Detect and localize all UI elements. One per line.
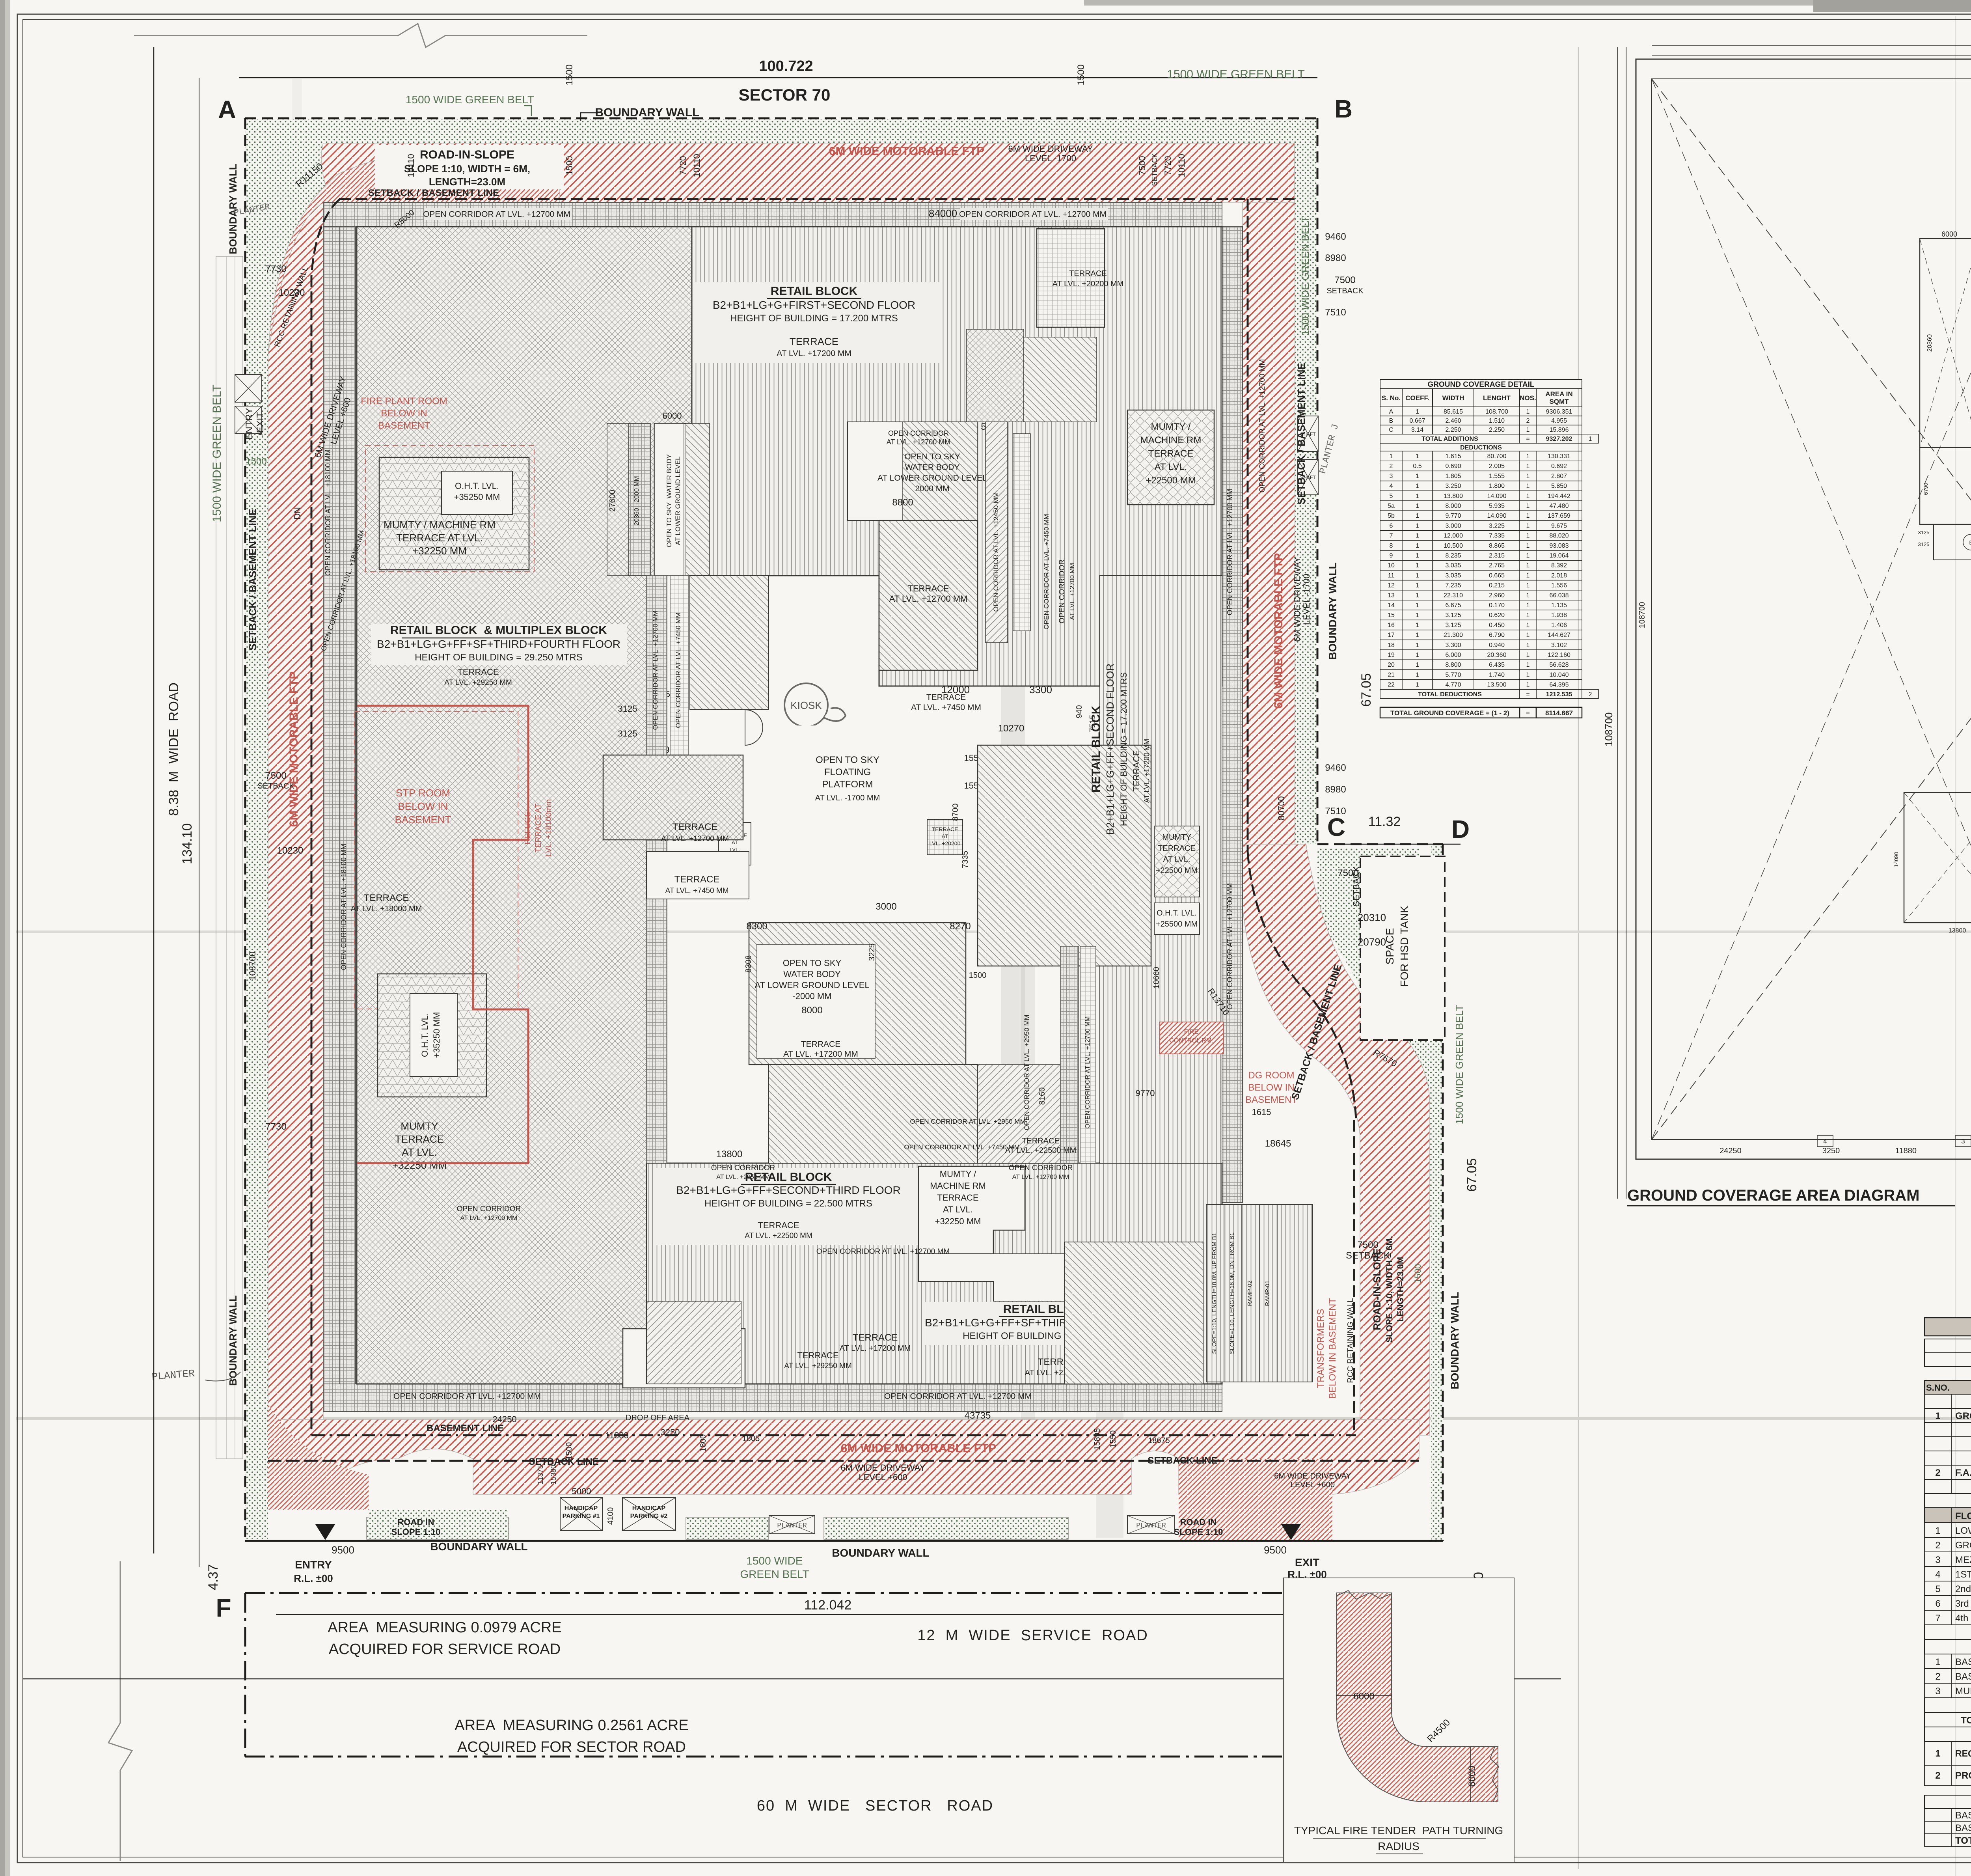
svg-text:TERRACE: TERRACE [1158, 844, 1196, 853]
svg-text:=: = [1526, 709, 1530, 717]
svg-text:1: 1 [1526, 473, 1530, 479]
svg-text:8.38 M WIDE ROAD: 8.38 M WIDE ROAD [166, 683, 181, 816]
svg-text:6.790: 6.790 [1489, 632, 1505, 639]
svg-text:GROUND FLOOR: GROUND FLOOR [1955, 1540, 1971, 1551]
svg-text:RETAIL BLOCK: RETAIL BLOCK [771, 285, 858, 298]
svg-text:OPEN CORRIDOR AT LVL. +12700 M: OPEN CORRIDOR AT LVL. +12700 MM [1258, 359, 1267, 492]
svg-text:3: 3 [1961, 1138, 1965, 1145]
svg-text:1: 1 [1416, 622, 1419, 628]
svg-text:1: 1 [1526, 682, 1530, 688]
svg-text:3.035: 3.035 [1445, 562, 1461, 569]
svg-text:HEIGHT OF BUILDING = 17.200 MT: HEIGHT OF BUILDING = 17.200 MTRS [1119, 672, 1129, 826]
svg-text:HANDICAP: HANDICAP [564, 1505, 598, 1512]
svg-text:AT LVL.: AT LVL. [1163, 855, 1190, 864]
svg-text:TERRACE: TERRACE [758, 1220, 799, 1230]
svg-text:18645: 18645 [1265, 1138, 1291, 1149]
svg-text:1: 1 [1526, 612, 1530, 619]
svg-text:1: 1 [1416, 473, 1419, 479]
svg-text:43735: 43735 [965, 1410, 991, 1421]
svg-text:8: 8 [1390, 543, 1393, 549]
svg-text:1: 1 [1416, 682, 1419, 688]
svg-text:6: 6 [1935, 1598, 1940, 1609]
svg-text:1: 1 [1416, 408, 1419, 415]
svg-text:LVL. +20200: LVL. +20200 [930, 840, 961, 847]
svg-text:1: 1 [1526, 572, 1530, 579]
svg-text:TOTAL BUILT UP AREA (FAR+ NON: TOTAL BUILT UP AREA (FAR+ NON FAR) [1961, 1715, 1971, 1726]
svg-text:6M WIDE DRIVEWAY: 6M WIDE DRIVEWAY [840, 1463, 925, 1473]
svg-text:HEIGHT OF BUILDING = 29.250 MT: HEIGHT OF BUILDING = 29.250 MTRS [415, 652, 583, 663]
svg-text:10270: 10270 [998, 723, 1025, 734]
svg-text:8.000: 8.000 [1445, 503, 1461, 509]
svg-text:TERRACE: TERRACE [801, 1040, 840, 1049]
svg-text:SLOPE=1:10, LENGTH=18.0M, UP F: SLOPE=1:10, LENGTH=18.0M, UP FROM B1 [1211, 1233, 1218, 1354]
svg-text:RCC RETAINING WALL: RCC RETAINING WALL [1346, 1298, 1355, 1383]
svg-text:1: 1 [1416, 602, 1419, 609]
svg-text:ENTRY: ENTRY [295, 1559, 332, 1571]
svg-text:O.H.T. LVL.: O.H.T. LVL. [1157, 909, 1197, 917]
svg-text:1: 1 [1526, 602, 1530, 609]
svg-text:OPEN CORRIDOR AT LVL. +18100 M: OPEN CORRIDOR AT LVL. +18100 MM [340, 844, 348, 970]
svg-text:3.000: 3.000 [1445, 522, 1461, 529]
svg-text:1500 WIDE GREEN BELT: 1500 WIDE GREEN BELT [1299, 216, 1311, 336]
svg-text:OPEN TO SKY: OPEN TO SKY [816, 755, 879, 765]
svg-text:ACQUIRED FOR SERVICE ROAD: ACQUIRED FOR SERVICE ROAD [329, 1641, 561, 1658]
svg-text:1500 WIDE: 1500 WIDE [746, 1555, 803, 1567]
svg-text:13800: 13800 [716, 1149, 743, 1160]
svg-text:3250: 3250 [661, 1427, 680, 1437]
svg-text:6M WIDE MOTORABLE FTP: 6M WIDE MOTORABLE FTP [841, 1442, 996, 1455]
svg-text:10110: 10110 [692, 154, 702, 177]
svg-text:20.360: 20.360 [1487, 652, 1507, 658]
svg-text:2.765: 2.765 [1489, 562, 1505, 569]
svg-text:6M WIDE DRIVEWAY: 6M WIDE DRIVEWAY [1292, 557, 1302, 641]
svg-text:8270: 8270 [950, 921, 971, 932]
svg-text:GROUND COVERAGE DETAIL: GROUND COVERAGE DETAIL [1428, 380, 1535, 389]
svg-text:6: 6 [1390, 522, 1393, 529]
svg-text:3.035: 3.035 [1445, 572, 1461, 579]
svg-text:TERRACE: TERRACE [364, 893, 409, 903]
svg-text:4th FLOOR: 4th FLOOR [1955, 1613, 1971, 1624]
svg-text:3.250: 3.250 [1445, 483, 1461, 490]
svg-text:1.510: 1.510 [1489, 418, 1505, 424]
svg-text:1: 1 [1416, 612, 1419, 619]
svg-text:DEDUCTIONS: DEDUCTIONS [1460, 444, 1502, 451]
svg-text:10110: 10110 [406, 154, 416, 177]
svg-text:14.090: 14.090 [1487, 513, 1507, 519]
svg-text:1: 1 [1526, 642, 1530, 649]
svg-text:SETBACK: SETBACK [1326, 287, 1364, 295]
svg-text:LEVEL -1700: LEVEL -1700 [1302, 574, 1312, 625]
svg-text:8308: 8308 [744, 955, 753, 973]
svg-text:9500: 9500 [332, 1544, 354, 1556]
svg-text:5: 5 [1935, 1584, 1940, 1594]
svg-text:AT LVL. +2950 MM: AT LVL. +2950 MM [716, 1174, 770, 1180]
svg-text:6.435: 6.435 [1489, 662, 1505, 668]
svg-text:10.040: 10.040 [1550, 671, 1569, 678]
svg-text:ENTRY: ENTRY [244, 408, 255, 440]
svg-text:LENGTH=23.0M: LENGTH=23.0M [1395, 1257, 1405, 1322]
svg-text:14.090: 14.090 [1487, 493, 1507, 500]
svg-text:6M WIDE MOTORABLE FTP: 6M WIDE MOTORABLE FTP [287, 671, 300, 827]
svg-text:12 M WIDE SERVICE ROAD: 12 M WIDE SERVICE ROAD [917, 1627, 1148, 1644]
svg-text:3.14: 3.14 [1411, 427, 1423, 433]
svg-text:SETBACK LINE: SETBACK LINE [1148, 1455, 1217, 1466]
svg-text:13: 13 [1388, 592, 1395, 599]
svg-text:1: 1 [1935, 1748, 1940, 1759]
svg-text:108700: 108700 [1603, 712, 1615, 747]
svg-text:OPEN CORRIDOR AT LVL. +7450 MM: OPEN CORRIDOR AT LVL. +7450 MM [904, 1143, 1019, 1151]
svg-text:1500: 1500 [1413, 1264, 1423, 1283]
svg-text:3: 3 [1935, 1555, 1940, 1565]
svg-text:BOUNDARY WALL: BOUNDARY WALL [227, 1295, 239, 1386]
svg-text:15895: 15895 [1093, 1428, 1102, 1450]
svg-text:1500 WIDE GREEN BELT: 1500 WIDE GREEN BELT [1453, 1005, 1465, 1124]
svg-text:A: A [218, 95, 236, 124]
svg-text:+22500 MM: +22500 MM [1156, 866, 1198, 875]
svg-text:134.10: 134.10 [180, 823, 195, 864]
svg-text:8800: 8800 [892, 497, 913, 508]
svg-text:3rd FLOOR: 3rd FLOOR [1955, 1598, 1971, 1609]
svg-text:1500 WIDE GREEN BELT: 1500 WIDE GREEN BELT [211, 384, 224, 522]
svg-text:1: 1 [1416, 671, 1419, 678]
svg-text:6000: 6000 [1353, 1691, 1374, 1702]
svg-text:22.310: 22.310 [1444, 592, 1463, 599]
svg-text:137.659: 137.659 [1548, 513, 1570, 519]
svg-text:122.160: 122.160 [1548, 652, 1570, 658]
svg-text:B2+B1+LG+G+FF+SF+THIRD+FOURTH: B2+B1+LG+G+FF+SF+THIRD+FOURTH FLOOR [377, 638, 620, 650]
svg-text:BASEMENT-2: BASEMENT-2 [1955, 1823, 1971, 1833]
svg-text:REQUIRED ECS @ 50 SQMT OF TOTA: REQUIRED ECS @ 50 SQMT OF TOTAL COVERED … [1955, 1748, 1971, 1759]
svg-text:4: 4 [1823, 1138, 1827, 1145]
svg-text:TERRACE: TERRACE [937, 1193, 978, 1203]
svg-text:AT LVL. +12700 MM: AT LVL. +12700 MM [889, 594, 968, 604]
svg-text:B2+B1+LG+G+FIRST+SECOND FLOOR: B2+B1+LG+G+FIRST+SECOND FLOOR [713, 299, 915, 311]
svg-text:GROUND COVERAGE: GROUND COVERAGE [1955, 1411, 1971, 1421]
svg-text:A: A [1389, 408, 1393, 415]
svg-text:+32250 MM: +32250 MM [935, 1216, 981, 1226]
svg-text:112.042: 112.042 [804, 1598, 851, 1613]
svg-text:+22500 MM: +22500 MM [1146, 475, 1196, 486]
svg-text:1: 1 [1390, 453, 1393, 460]
svg-text:1: 1 [1416, 592, 1419, 599]
svg-text:FLOORS: FLOORS [1955, 1511, 1971, 1522]
svg-text:1: 1 [1416, 493, 1419, 500]
svg-text:FIRE: FIRE [1184, 1029, 1198, 1035]
svg-text:7: 7 [1390, 533, 1393, 539]
svg-text:OPEN CORRIDOR AT LVL. +18100 M: OPEN CORRIDOR AT LVL. +18100 MM [324, 449, 332, 576]
svg-text:1: 1 [1589, 436, 1592, 442]
svg-text:2.807: 2.807 [1551, 473, 1567, 479]
svg-text:88.020: 88.020 [1550, 533, 1569, 539]
svg-text:BOUNDARY WALL: BOUNDARY WALL [832, 1547, 929, 1559]
svg-text:1: 1 [1526, 562, 1530, 569]
svg-text:11.32: 11.32 [1368, 814, 1401, 829]
svg-text:1805: 1805 [742, 1434, 760, 1443]
svg-text:0.620: 0.620 [1489, 612, 1505, 619]
svg-text:11: 11 [1388, 572, 1395, 579]
svg-text:4.37: 4.37 [206, 1564, 221, 1590]
svg-text:47.480: 47.480 [1550, 503, 1569, 509]
svg-text:MUMTY /: MUMTY / [940, 1169, 976, 1179]
svg-text:AT LVL. +17200 MM: AT LVL. +17200 MM [1143, 739, 1151, 803]
svg-text:BASEMENT LINE: BASEMENT LINE [427, 1423, 504, 1434]
svg-text:=: = [1526, 436, 1529, 442]
svg-text:MUMTY / MACHINE RM: MUMTY / MACHINE RM [384, 519, 496, 531]
svg-text:OPEN TO SKY WATER BODY: OPEN TO SKY WATER BODY [665, 454, 673, 547]
svg-text:SLOPE 1:10: SLOPE 1:10 [1174, 1527, 1223, 1537]
svg-text:1: 1 [1935, 1657, 1940, 1667]
svg-text:16: 16 [1388, 622, 1395, 628]
svg-text:AT LVL. +12700 MM: AT LVL. +12700 MM [661, 835, 729, 843]
svg-text:6M WIDE DRIVEWAY: 6M WIDE DRIVEWAY [1008, 144, 1093, 154]
svg-text:BASEMENT: BASEMENT [378, 420, 430, 431]
svg-text:1.615: 1.615 [1445, 453, 1461, 460]
svg-text:1: 1 [1526, 671, 1530, 678]
svg-text:1: 1 [1526, 453, 1530, 460]
svg-text:1.406: 1.406 [1551, 622, 1567, 628]
svg-text:1: 1 [1526, 463, 1530, 470]
svg-text:AT LVL. +12700 MM: AT LVL. +12700 MM [1012, 1174, 1069, 1180]
svg-text:5.850: 5.850 [1551, 483, 1567, 490]
svg-text:2.460: 2.460 [1445, 418, 1461, 424]
svg-text:7730: 7730 [265, 264, 286, 274]
svg-text:NOS.: NOS. [1520, 394, 1536, 402]
svg-text:6000: 6000 [1941, 230, 1957, 238]
svg-text:HEIGHT OF BUILDING = 22.500 MT: HEIGHT OF BUILDING = 22.500 MTRS [704, 1198, 872, 1209]
svg-text:STP ROOM: STP ROOM [396, 787, 450, 799]
svg-text:1: 1 [1416, 513, 1419, 519]
svg-text:BASEMENT-1 (WITH STACK) (230+1: BASEMENT-1 (WITH STACK) (230+106) [1955, 1810, 1971, 1821]
svg-text:LEVEL +600: LEVEL +600 [1291, 1481, 1335, 1489]
svg-text:1500 WIDE GREEN BELT: 1500 WIDE GREEN BELT [406, 93, 534, 106]
svg-text:TERRACE: TERRACE [790, 336, 838, 347]
svg-text:4100: 4100 [606, 1507, 615, 1525]
svg-text:2.960: 2.960 [1489, 592, 1505, 599]
svg-text:5: 5 [1390, 493, 1393, 500]
svg-text:BASEMENT-2: BASEMENT-2 [1955, 1671, 1971, 1682]
svg-text:AT LVL. +12700 MM: AT LVL. +12700 MM [1069, 563, 1076, 620]
svg-text:TERRACE: TERRACE [853, 1332, 898, 1343]
svg-text:80.700: 80.700 [1487, 453, 1507, 460]
svg-text:1.800: 1.800 [1489, 483, 1505, 490]
svg-text:0.215: 0.215 [1489, 582, 1505, 589]
svg-text:MUMTY & MACHINE ROOM: MUMTY & MACHINE ROOM [1955, 1686, 1971, 1697]
svg-text:3125: 3125 [618, 704, 637, 714]
svg-text:1: 1 [1416, 652, 1419, 658]
svg-text:7500: 7500 [1334, 275, 1355, 285]
svg-text:3.125: 3.125 [1445, 622, 1461, 628]
svg-text:1.938: 1.938 [1551, 612, 1567, 619]
svg-text:1: 1 [1935, 1411, 1940, 1421]
svg-text:B: B [1334, 95, 1353, 123]
svg-text:F.A.R @ 175 %: F.A.R @ 175 % [1955, 1468, 1971, 1478]
svg-text:1500: 1500 [564, 156, 574, 175]
svg-text:AT LVL. +17200 MM: AT LVL. +17200 MM [840, 1344, 911, 1353]
svg-text:R.L. ±00: R.L. ±00 [294, 1572, 333, 1584]
svg-text:TERRACE: TERRACE [907, 584, 949, 593]
svg-text:2: 2 [1935, 1468, 1940, 1478]
svg-text:15380: 15380 [550, 1465, 557, 1484]
svg-text:21: 21 [1388, 671, 1395, 678]
svg-text:CONTROL RM.: CONTROL RM. [1169, 1037, 1213, 1044]
svg-text:84000: 84000 [929, 207, 957, 219]
svg-text:FLOATING: FLOATING [824, 767, 871, 778]
svg-text:AT LVL. +17200 MM: AT LVL. +17200 MM [783, 1050, 858, 1059]
svg-text:7500: 7500 [1357, 1240, 1378, 1250]
svg-text:OPEN CORRIDOR AT LVL. +12700 M: OPEN CORRIDOR AT LVL. +12700 MM [1226, 489, 1234, 615]
svg-text:9.675: 9.675 [1551, 522, 1567, 529]
svg-text:2.250: 2.250 [1489, 427, 1505, 433]
svg-text:WIDTH: WIDTH [1442, 394, 1464, 402]
svg-text:/EXIT: /EXIT [255, 412, 266, 436]
svg-text:OPEN CORRIDOR AT LVL. +12450 M: OPEN CORRIDOR AT LVL. +12450 MM [992, 492, 1000, 612]
svg-text:SLOPE 1:10: SLOPE 1:10 [391, 1527, 441, 1537]
svg-text:TOTAL ADDITIONS: TOTAL ADDITIONS [1421, 436, 1478, 442]
svg-text:2: 2 [1935, 1770, 1940, 1781]
svg-text:9460: 9460 [1325, 231, 1346, 242]
svg-text:LENGTH=23.0M: LENGTH=23.0M [429, 176, 505, 188]
svg-text:B2+B1+LG+G+FF+SECOND FLOOR: B2+B1+LG+G+FF+SECOND FLOOR [1104, 664, 1116, 835]
svg-text:3: 3 [1390, 473, 1393, 479]
svg-text:3.125: 3.125 [1445, 612, 1461, 619]
svg-text:7335: 7335 [961, 851, 970, 869]
svg-text:10230: 10230 [277, 845, 304, 856]
svg-text:MACHINE RM: MACHINE RM [1140, 435, 1202, 446]
svg-text:9500: 9500 [1264, 1544, 1287, 1556]
svg-text:2: 2 [1390, 463, 1393, 470]
svg-text:15.896: 15.896 [1550, 427, 1569, 433]
svg-text:9306.351: 9306.351 [1546, 408, 1572, 415]
svg-text:7.335: 7.335 [1489, 533, 1505, 539]
svg-text:LENGHT: LENGHT [1483, 394, 1511, 402]
svg-text:D: D [1451, 815, 1470, 843]
svg-text:6000: 6000 [1467, 1766, 1477, 1786]
svg-text:1: 1 [1526, 533, 1530, 539]
svg-text:9.770: 9.770 [1445, 513, 1461, 519]
svg-text:ROAD IN: ROAD IN [1180, 1517, 1217, 1527]
svg-text:BOUNDARY WALL: BOUNDARY WALL [595, 106, 700, 119]
svg-text:130.331: 130.331 [1548, 453, 1570, 460]
svg-text:OPEN TO SKY: OPEN TO SKY [783, 958, 842, 968]
svg-text:0.170: 0.170 [1489, 602, 1505, 609]
svg-text:20310: 20310 [1358, 912, 1386, 923]
svg-text:BELOW IN: BELOW IN [1248, 1082, 1294, 1093]
svg-text:67.05: 67.05 [1464, 1158, 1479, 1192]
svg-text:8114.667: 8114.667 [1545, 709, 1573, 717]
svg-text:6M WIDE DRIVEWAY: 6M WIDE DRIVEWAY [1274, 1472, 1351, 1481]
svg-text:2.250: 2.250 [1445, 427, 1461, 433]
svg-text:0.5: 0.5 [1413, 463, 1421, 470]
svg-text:AT LVL. +7450 MM: AT LVL. +7450 MM [665, 887, 728, 895]
svg-text:1212.535: 1212.535 [1546, 691, 1572, 698]
svg-text:64.395: 64.395 [1550, 682, 1569, 688]
svg-text:1: 1 [1416, 522, 1419, 529]
svg-text:BELOW IN: BELOW IN [381, 408, 427, 419]
svg-text:17: 17 [1388, 632, 1395, 639]
svg-text:FOR HSD TANK: FOR HSD TANK [1398, 906, 1410, 987]
svg-text:1: 1 [1526, 483, 1530, 490]
svg-text:RETAIL BLOCK: RETAIL BLOCK [1090, 705, 1103, 793]
svg-text:1: 1 [1416, 632, 1419, 639]
svg-text:18675: 18675 [1148, 1436, 1170, 1445]
svg-text:ACQUIRED FOR SECTOR ROAD: ACQUIRED FOR SECTOR ROAD [457, 1739, 686, 1755]
svg-text:GROUND COVERAGE AREA DIAGRAM: GROUND COVERAGE AREA DIAGRAM [1627, 1187, 1920, 1204]
svg-text:1.805: 1.805 [1445, 473, 1461, 479]
svg-text:1: 1 [1526, 503, 1530, 509]
svg-text:7.235: 7.235 [1445, 582, 1461, 589]
svg-text:+35250 MM: +35250 MM [454, 492, 500, 502]
svg-text:TYPICAL FIRE TENDER PATH TURN: TYPICAL FIRE TENDER PATH TURNING [1294, 1824, 1503, 1837]
svg-text:1: 1 [1416, 453, 1419, 460]
svg-text:93.083: 93.083 [1550, 543, 1569, 549]
svg-text:OPEN CORRIDOR AT LVL. +12700 M: OPEN CORRIDOR AT LVL. +12700 MM [1084, 1016, 1091, 1129]
svg-text:BOUNDARY WALL: BOUNDARY WALL [430, 1540, 527, 1553]
svg-text:SETBACK: SETBACK [1351, 866, 1361, 906]
svg-text:9: 9 [1390, 552, 1393, 559]
svg-text:BASEMENT-1: BASEMENT-1 [1955, 1657, 1971, 1667]
svg-text:LVL. +18100mm: LVL. +18100mm [544, 799, 553, 857]
svg-text:TERRACE: TERRACE [1069, 269, 1107, 278]
svg-text:TERRACE: TERRACE [797, 1350, 838, 1360]
svg-text:7720: 7720 [678, 156, 688, 175]
svg-text:LEVEL +600: LEVEL +600 [859, 1472, 907, 1482]
svg-text:4.770: 4.770 [1445, 682, 1461, 688]
svg-text:7720: 7720 [1163, 156, 1173, 175]
svg-text:21.300: 21.300 [1444, 632, 1463, 639]
svg-text:B: B [1389, 418, 1393, 424]
svg-text:AT LVL. +17200 MM: AT LVL. +17200 MM [777, 349, 851, 358]
svg-text:SETBACK: SETBACK [1151, 153, 1159, 186]
svg-text:1: 1 [1526, 522, 1530, 529]
svg-text:1: 1 [1416, 642, 1419, 649]
svg-text:OPEN CORRIDOR AT LVL. +12700 M: OPEN CORRIDOR AT LVL. +12700 MM [959, 210, 1107, 219]
svg-text:80700: 80700 [1276, 796, 1286, 820]
svg-text:OPEN CORRIDOR AT LVL. +12700 M: OPEN CORRIDOR AT LVL. +12700 MM [1226, 883, 1234, 1010]
svg-text:AT LVL.: AT LVL. [943, 1205, 973, 1214]
svg-text:0.690: 0.690 [1445, 463, 1461, 470]
svg-text:AT LVL. +29250 MM: AT LVL. +29250 MM [784, 1362, 852, 1370]
svg-text:3225: 3225 [868, 944, 876, 961]
svg-text:8980: 8980 [1325, 784, 1346, 795]
svg-text:1: 1 [1526, 632, 1530, 639]
svg-text:20790: 20790 [1358, 936, 1386, 948]
svg-text:OPEN CORRIDOR: OPEN CORRIDOR [888, 429, 949, 437]
svg-text:AT LVL. +22500 MM: AT LVL. +22500 MM [1005, 1146, 1077, 1155]
svg-text:SQMT: SQMT [1549, 398, 1569, 405]
svg-text:1500: 1500 [246, 456, 266, 467]
svg-text:14090: 14090 [1893, 852, 1899, 867]
svg-text:9770: 9770 [1136, 1088, 1155, 1098]
svg-text:1: 1 [1416, 503, 1419, 509]
svg-text:DROP OFF AREA: DROP OFF AREA [626, 1414, 690, 1422]
svg-text:1550: 1550 [1109, 1430, 1118, 1448]
svg-text:OPEN CORRIDOR AT LVL. +2950 MM: OPEN CORRIDOR AT LVL. +2950 MM [1023, 1014, 1030, 1130]
svg-text:7500: 7500 [1137, 156, 1147, 175]
svg-text:SLOPE 1:10, WIDTH = 6M,: SLOPE 1:10, WIDTH = 6M, [404, 163, 530, 175]
svg-text:100.722: 100.722 [759, 58, 813, 75]
svg-text:5000: 5000 [572, 1486, 591, 1496]
svg-text:AT LVL. +29250 MM: AT LVL. +29250 MM [444, 679, 512, 687]
svg-text:3.102: 3.102 [1551, 642, 1567, 649]
svg-text:20360: 20360 [1926, 334, 1933, 352]
svg-text:SETBACK / BASEMENT LINE: SETBACK / BASEMENT LINE [247, 509, 259, 651]
svg-text:1: 1 [1526, 592, 1530, 599]
svg-text:5.935: 5.935 [1489, 503, 1505, 509]
svg-text:1: 1 [1416, 533, 1419, 539]
svg-text:144.627: 144.627 [1548, 632, 1570, 639]
svg-text:+32250 MM: +32250 MM [412, 545, 467, 557]
svg-text:AT: AT [942, 833, 948, 839]
